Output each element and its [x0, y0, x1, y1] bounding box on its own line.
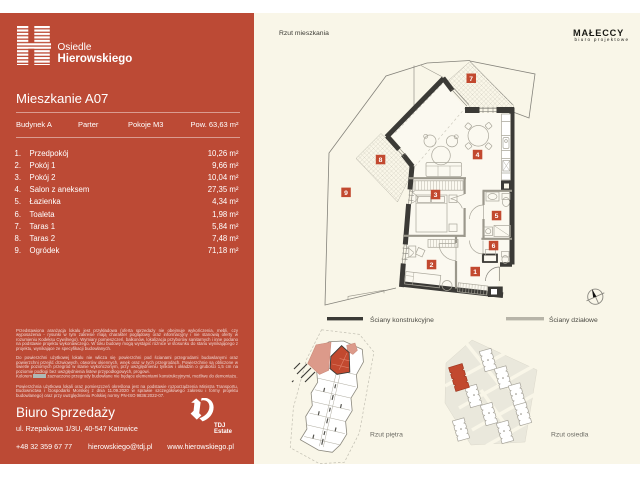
svg-text:Ściany konstrukcyjne: Ściany konstrukcyjne	[370, 315, 434, 324]
svg-text:Rzut osiedla: Rzut osiedla	[551, 432, 589, 439]
svg-text:2: 2	[430, 262, 434, 269]
svg-text:3: 3	[434, 192, 438, 199]
svg-text:6: 6	[492, 243, 496, 250]
svg-text:1: 1	[473, 269, 477, 276]
svg-text:Rzut piętra: Rzut piętra	[370, 432, 403, 439]
svg-text:8: 8	[379, 157, 383, 164]
svg-text:7: 7	[469, 76, 473, 83]
svg-text:9: 9	[344, 190, 348, 197]
svg-text:Ściany działowe: Ściany działowe	[549, 315, 598, 324]
svg-text:5: 5	[495, 213, 499, 220]
svg-text:4: 4	[476, 152, 480, 159]
